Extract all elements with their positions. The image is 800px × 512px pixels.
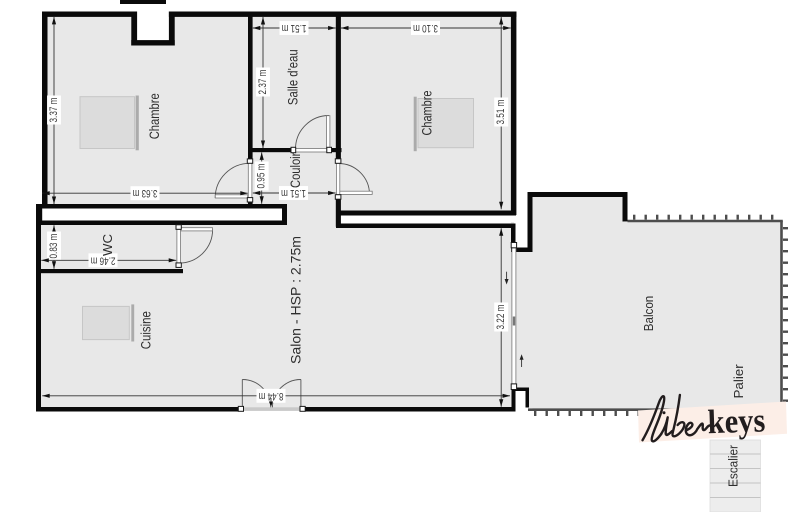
- svg-text:Palier: Palier: [731, 364, 746, 399]
- svg-text:keys: keys: [707, 402, 766, 441]
- svg-text:2.37 m: 2.37 m: [257, 70, 269, 95]
- svg-text:0.95 m: 0.95 m: [256, 164, 268, 189]
- svg-text:Escalier: Escalier: [726, 444, 741, 487]
- svg-text:Chambre: Chambre: [147, 93, 162, 139]
- svg-text:3.63 m: 3.63 m: [133, 187, 158, 199]
- svg-text:WC: WC: [101, 234, 115, 256]
- svg-text:1.51 m: 1.51 m: [282, 22, 307, 34]
- svg-text:Cuisine: Cuisine: [138, 311, 153, 349]
- svg-text:3.10 m: 3.10 m: [413, 22, 438, 34]
- svg-text:Chambre: Chambre: [419, 90, 434, 135]
- svg-text:Salon - HSP : 2.75m: Salon - HSP : 2.75m: [289, 236, 304, 364]
- svg-text:3.22 m: 3.22 m: [495, 305, 507, 330]
- svg-text:Balcon: Balcon: [641, 296, 656, 332]
- svg-text:Salle d'eau: Salle d'eau: [286, 49, 301, 105]
- svg-text:3.37 m: 3.37 m: [48, 98, 60, 123]
- svg-text:Couloir: Couloir: [288, 152, 303, 188]
- svg-text:0.83 m: 0.83 m: [48, 234, 60, 259]
- svg-text:3.51 m: 3.51 m: [495, 100, 507, 125]
